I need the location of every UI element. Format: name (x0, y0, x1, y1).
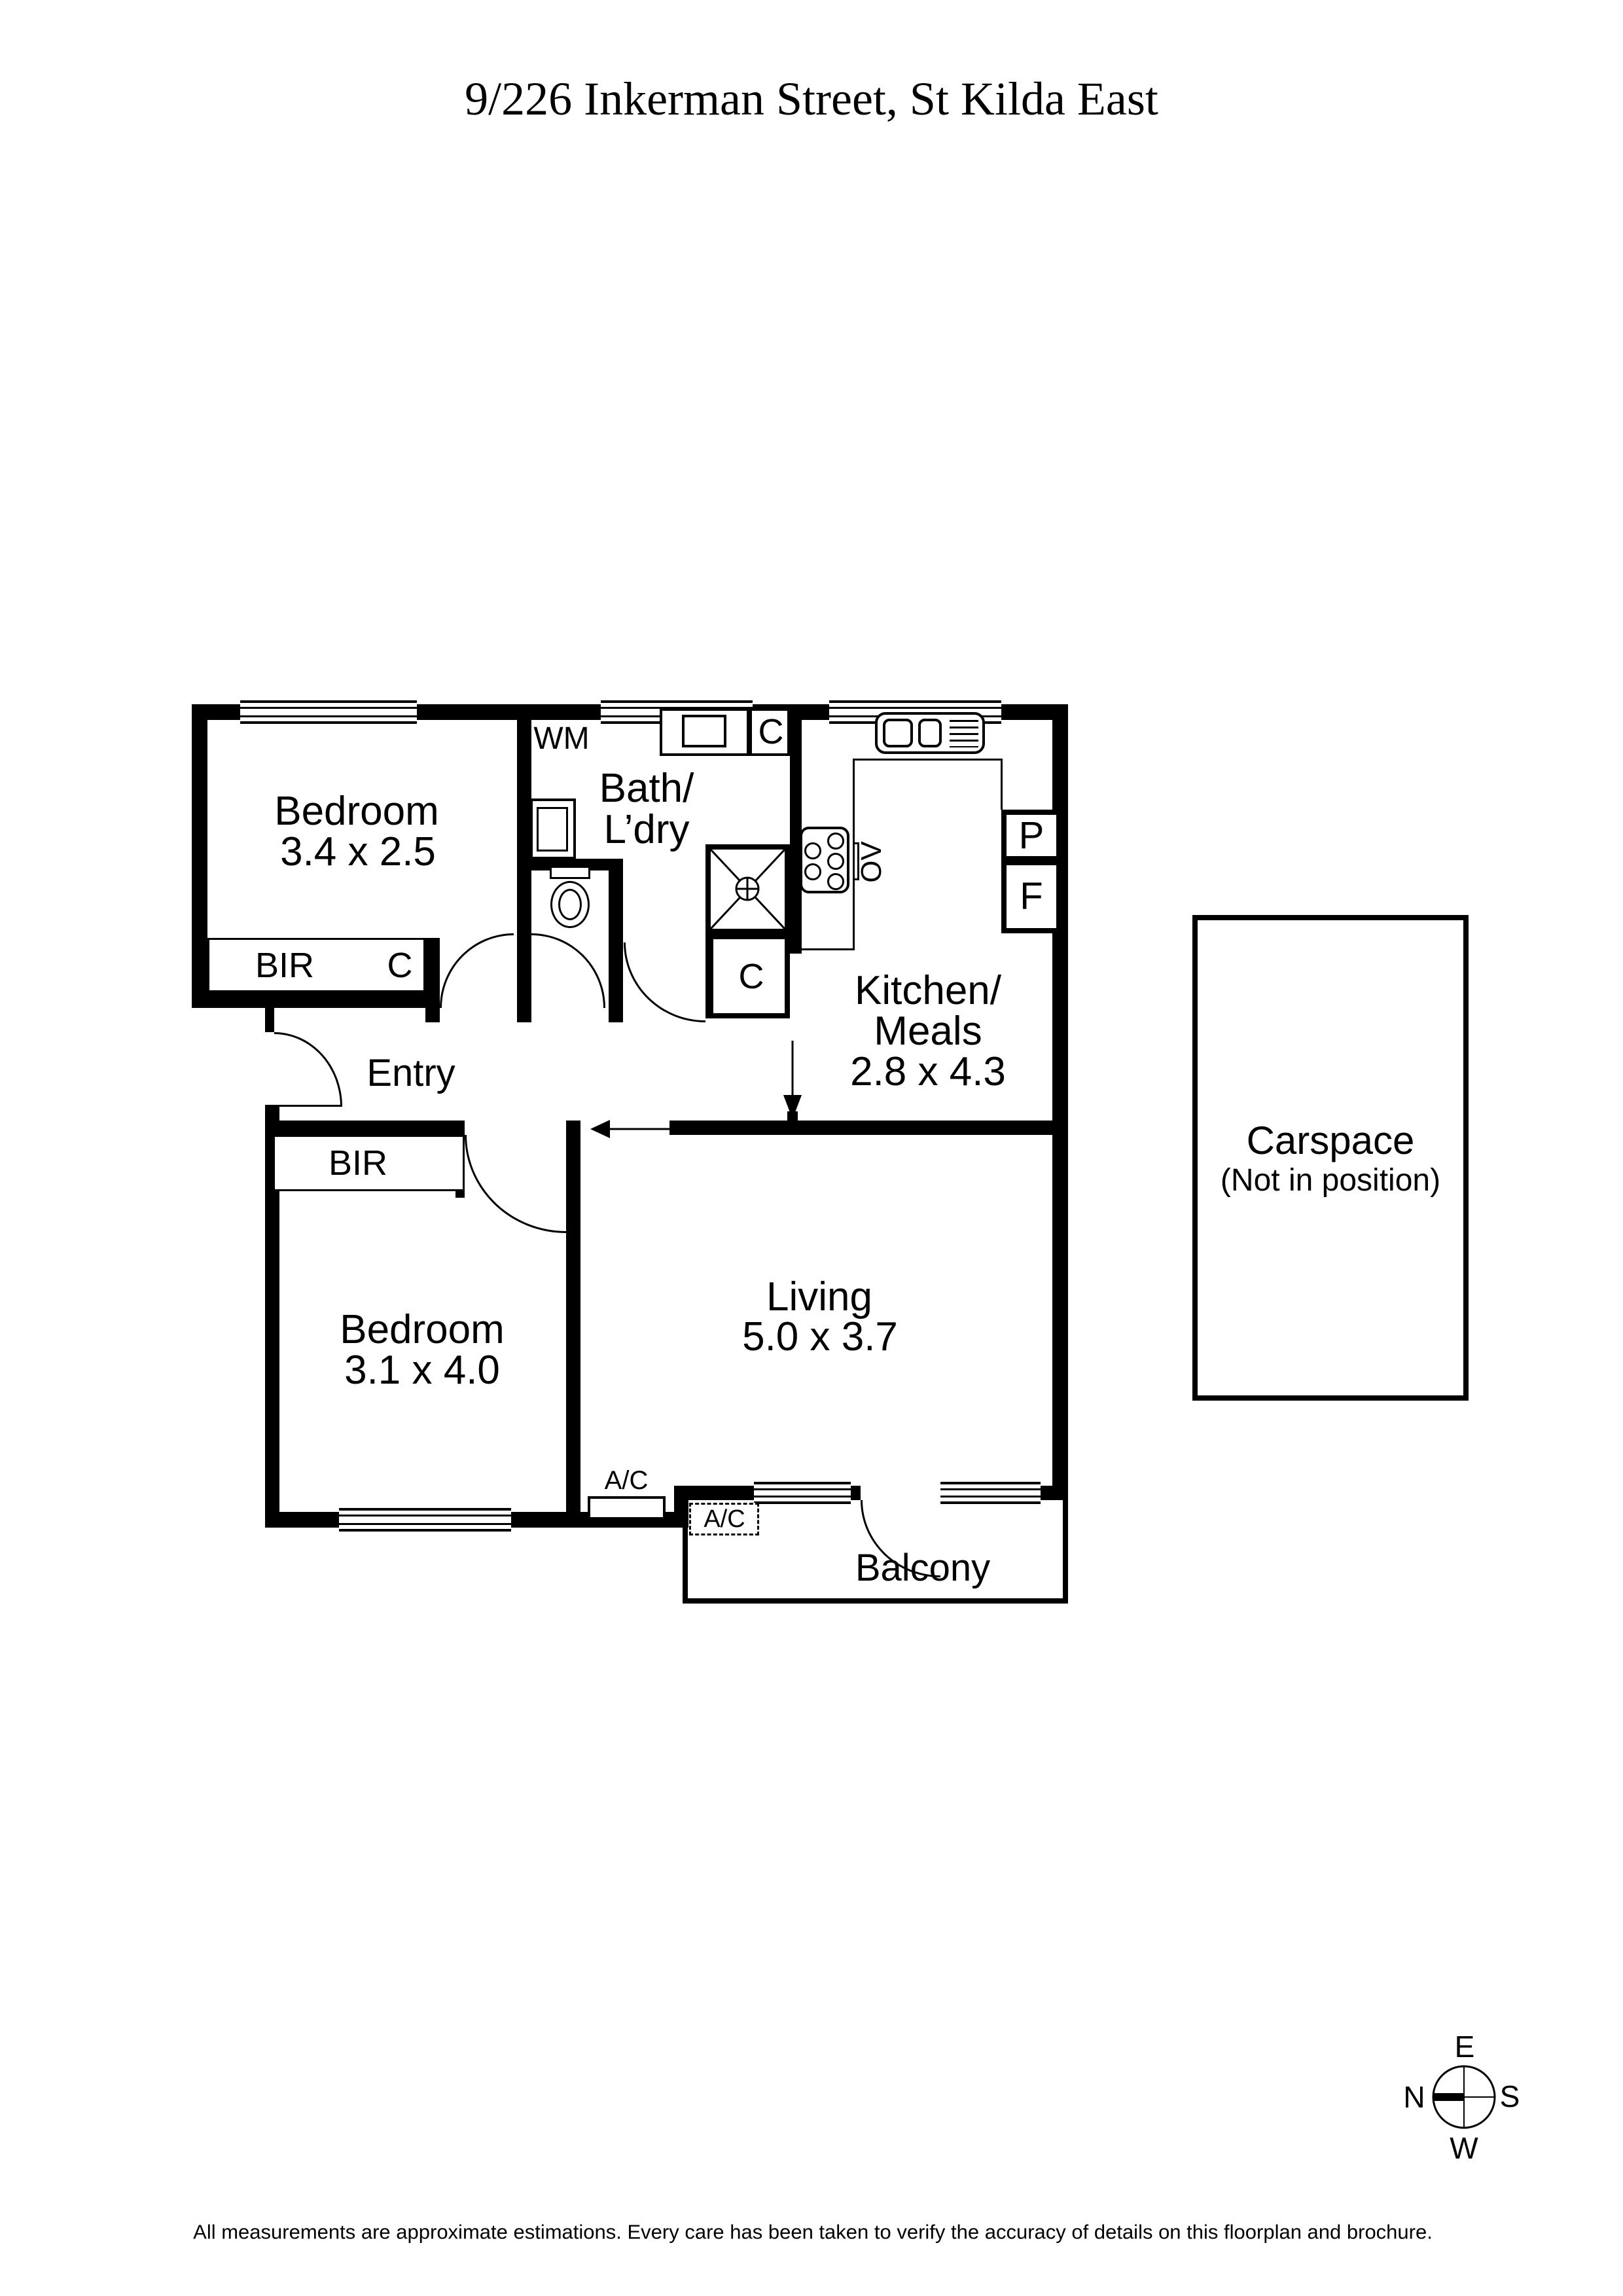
wall-left-upper (192, 704, 207, 1008)
entry-path-down-arrow-icon (783, 1041, 802, 1121)
footer-disclaimer: All measurements are approximate estimat… (193, 2222, 1433, 2242)
page-title: 9/226 Inkerman Street, St Kilda East (465, 75, 1158, 122)
entry-door-leaf (265, 1105, 342, 1107)
bedroom1-door-arc (440, 933, 514, 1008)
wall-bedroom2-top (265, 1121, 465, 1135)
compass-south-label: S (1500, 2081, 1520, 2111)
bedroom2-door-arc (465, 1135, 566, 1233)
shower-icon (711, 850, 785, 929)
toilet-tank (550, 866, 590, 879)
bedroom1-label: Bedroom (274, 791, 439, 832)
cupboard-top-label: C (758, 714, 784, 749)
wall-c1-jamb (425, 938, 440, 1022)
fridge-label: F (1020, 878, 1043, 916)
wall-living-top (669, 1121, 1068, 1135)
bath-door-arc (624, 942, 705, 1022)
bath-label-line1: Bath/ (599, 768, 694, 809)
burner-icon (827, 833, 844, 850)
burner-icon (804, 863, 821, 880)
burner-icon (804, 842, 821, 859)
wall-balcony-right (1063, 1500, 1068, 1604)
wall-bedroom2-right (566, 1121, 580, 1528)
toilet-door-arc (531, 933, 605, 1008)
carspace-label: Carspace (1247, 1121, 1415, 1160)
cupboard1-label: C (387, 948, 413, 983)
ac-dashed-label: A/C (704, 1507, 745, 1532)
compass-icon (1428, 2061, 1500, 2133)
sink-bowl-1 (883, 719, 913, 747)
wall-balcony-left (683, 1500, 688, 1604)
wall-hall-left (192, 992, 440, 1008)
washing-machine-inner (682, 715, 726, 747)
living-dims: 5.0 x 3.7 (742, 1317, 898, 1357)
window-living-2 (940, 1482, 1041, 1504)
wall-toilet-right (609, 859, 623, 1022)
bath-label-line2: L’dry (604, 810, 690, 850)
wall-entry-jamb (265, 1008, 274, 1032)
carspace-note: (Not in position) (1221, 1165, 1440, 1196)
compass-north-label: N (1403, 2082, 1425, 2112)
ac-label: A/C (605, 1467, 649, 1494)
bir1-label: BIR (255, 948, 314, 983)
ac-unit-box (588, 1496, 666, 1520)
bir2-label: BIR (329, 1145, 387, 1181)
toilet-bowl-inner (558, 889, 582, 920)
counter-edge-top (853, 759, 1003, 761)
vanity-basin (537, 807, 568, 852)
sink-drainer-icon (950, 720, 978, 747)
sink-bowl-2 (918, 719, 942, 747)
living-label: Living (766, 1277, 872, 1318)
window-bedroom2 (339, 1508, 511, 1532)
burner-icon (827, 853, 844, 870)
cupboard-mid-label: C (739, 959, 764, 994)
kitchen-dims: 2.8 x 4.3 (850, 1052, 1006, 1092)
bedroom2-dims: 3.1 x 4.0 (344, 1350, 500, 1391)
window-living-1 (754, 1482, 851, 1504)
counter-edge-bottom (795, 948, 855, 950)
balcony-label: Balcony (855, 1549, 990, 1587)
compass-west-label: W (1450, 2133, 1478, 2163)
floorplan-page: 9/226 Inkerman Street, St Kilda East (0, 0, 1623, 2296)
wall-bath-left (517, 720, 531, 1022)
entry-label: Entry (366, 1054, 455, 1092)
bedroom1-dims: 3.4 x 2.5 (280, 832, 436, 872)
washing-machine-label: WM (533, 723, 589, 755)
compass-east-label: E (1455, 2032, 1475, 2062)
kitchen-label-line1: Kitchen/ (855, 971, 1001, 1011)
bedroom2-label: Bedroom (340, 1310, 505, 1350)
counter-edge-right (1001, 759, 1003, 810)
window-bedroom1 (240, 700, 417, 724)
entry-door-arc (274, 1032, 342, 1107)
burner-icon (827, 873, 844, 890)
oven-label: OV (857, 841, 886, 883)
entry-path-left-arrow-icon (589, 1117, 675, 1141)
kitchen-label-line2: Meals (874, 1011, 982, 1052)
wall-balcony-bottom (683, 1598, 1068, 1604)
pantry-label: P (1019, 817, 1044, 855)
